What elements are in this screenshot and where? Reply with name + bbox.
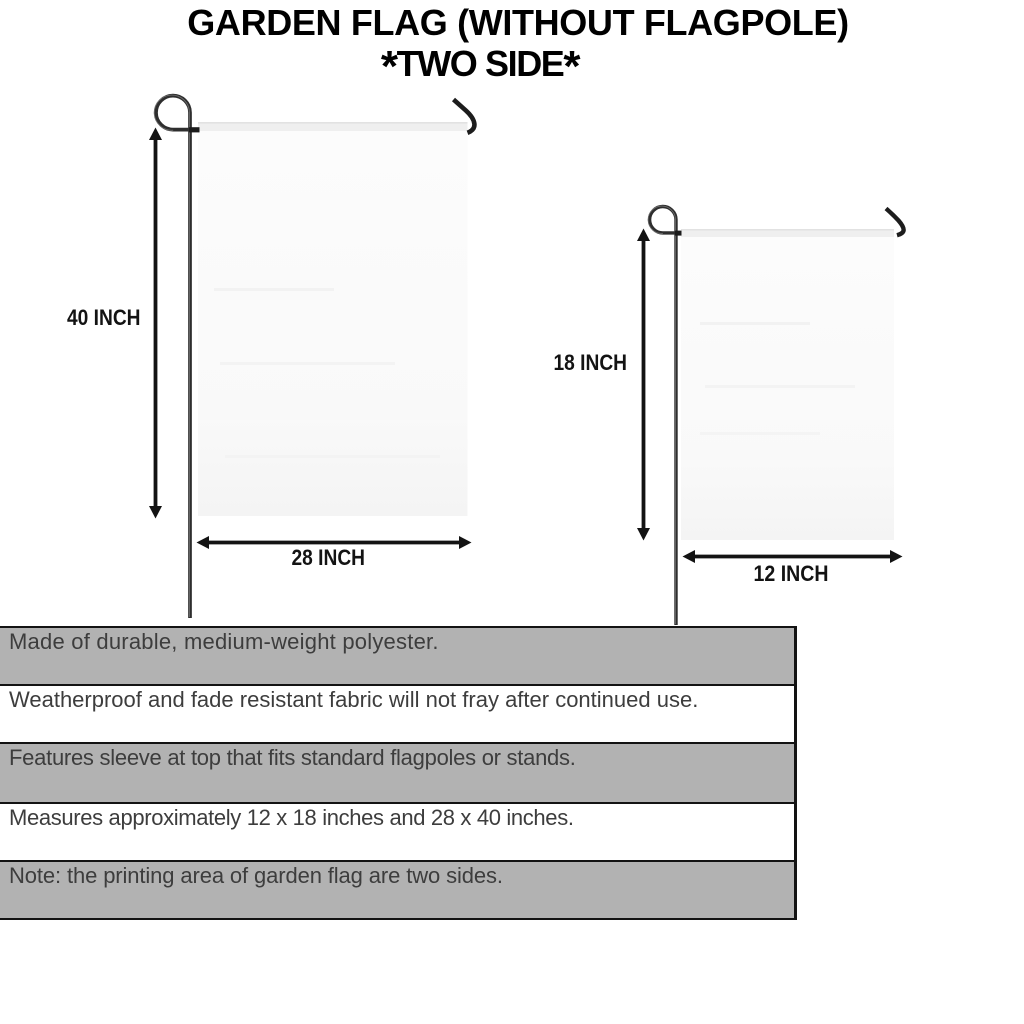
- svg-text:18 INCH: 18 INCH: [554, 350, 628, 375]
- svg-text:40 INCH: 40 INCH: [67, 305, 141, 330]
- svg-text:28 INCH: 28 INCH: [292, 545, 366, 570]
- svg-text:12 INCH: 12 INCH: [754, 561, 829, 586]
